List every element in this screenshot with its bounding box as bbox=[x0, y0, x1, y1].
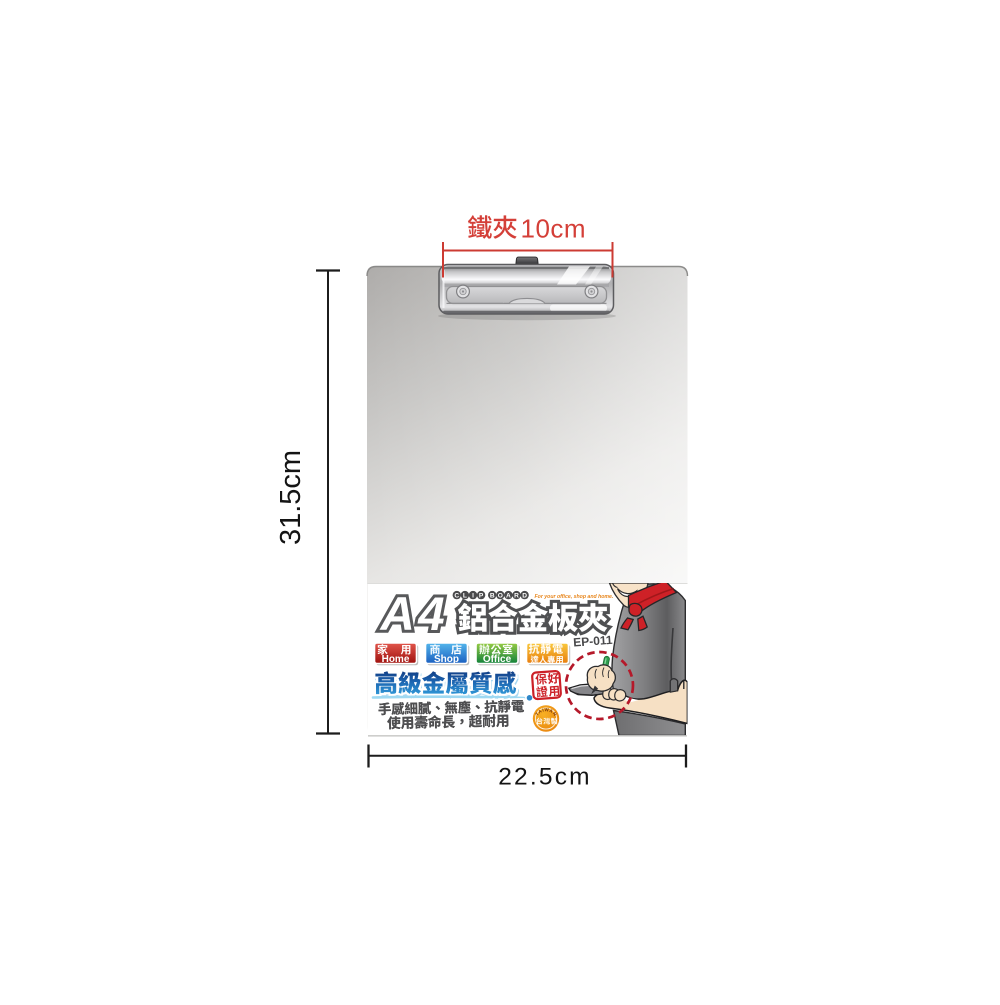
svg-text:Shop: Shop bbox=[434, 654, 459, 665]
svg-text:10cm: 10cm bbox=[521, 213, 587, 243]
svg-text:L: L bbox=[463, 593, 467, 600]
svg-text:31.5cm: 31.5cm bbox=[275, 450, 307, 545]
svg-text:B: B bbox=[490, 593, 495, 600]
svg-text:A: A bbox=[506, 593, 511, 600]
svg-text:C: C bbox=[454, 593, 459, 600]
svg-text:R: R bbox=[514, 593, 519, 600]
svg-text:O: O bbox=[498, 593, 503, 600]
svg-text:For your office, shop and home: For your office, shop and home. bbox=[535, 594, 614, 600]
svg-text:I: I bbox=[472, 593, 474, 600]
svg-text:D: D bbox=[522, 593, 527, 600]
svg-text:Home: Home bbox=[382, 654, 410, 665]
svg-text:EP-011: EP-011 bbox=[573, 633, 614, 650]
svg-text:Office: Office bbox=[483, 654, 512, 665]
svg-text:22.5cm: 22.5cm bbox=[498, 764, 592, 791]
svg-text:P: P bbox=[479, 593, 484, 600]
svg-text:A4: A4 bbox=[380, 588, 449, 641]
